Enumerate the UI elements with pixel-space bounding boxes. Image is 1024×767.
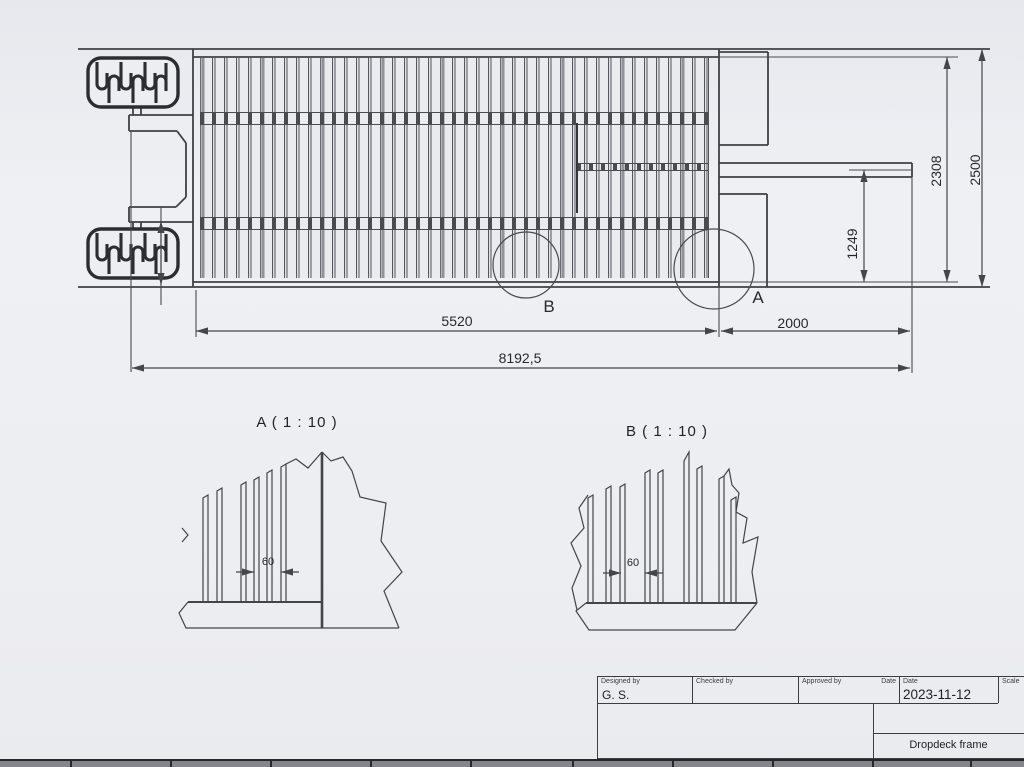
drawing-linework: [0, 0, 1024, 767]
detail-view-b: [571, 452, 758, 630]
detail-b-slat-spacing: 60: [618, 557, 648, 569]
tire-rear: [88, 229, 178, 278]
tire-front: [88, 58, 178, 107]
designed-by-label: Designed by: [601, 678, 640, 685]
detail-a-slat-spacing: 60: [253, 556, 283, 568]
scale-label: Scale: [1002, 678, 1020, 685]
date-value: 2023-11-12: [903, 687, 971, 702]
dimension-lines: [132, 49, 982, 368]
detail-marker-a: A: [748, 288, 768, 308]
detail-circle-a: [674, 229, 754, 309]
dim-overall-width: 2500: [967, 150, 983, 190]
drawing-title: Dropdeck frame: [873, 739, 1024, 751]
dim-deck-length: 5520: [437, 313, 477, 329]
detail-circle-b: [493, 232, 559, 298]
date-label-1: Date: [860, 678, 896, 685]
detail-circles: [493, 229, 754, 309]
dim-rear-length: 2000: [773, 315, 813, 331]
dim-drawbar-offset: 1249: [844, 224, 860, 264]
checked-by-label: Checked by: [696, 678, 733, 685]
designed-by-value: G. S.: [602, 688, 629, 702]
date-label-2: Date: [903, 678, 918, 685]
dim-overall-length: 8192,5: [495, 350, 545, 366]
sheet-bottom-edge: [0, 759, 1024, 767]
extension-lines: [131, 57, 958, 373]
detail-b-title: B ( 1 : 10 ): [607, 423, 727, 440]
detail-a-title: A ( 1 : 10 ): [237, 414, 357, 431]
drawing-sheet: 5520 2000 8192,5 2308 2500 1249 A B A ( …: [0, 0, 1024, 767]
approved-by-label: Approved by: [802, 678, 841, 685]
detail-marker-b: B: [539, 297, 559, 317]
detail-view-a: [179, 452, 402, 628]
dim-deck-width: 2308: [928, 151, 944, 191]
